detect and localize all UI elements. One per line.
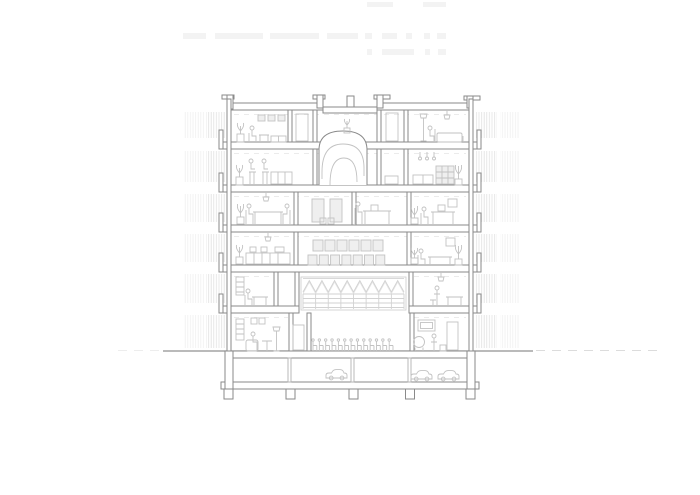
pendant-lamp-icon [420,152,434,157]
shelf-icon [236,319,244,340]
table-icon [262,341,272,351]
person-icon [421,207,428,224]
person-icon [249,126,256,142]
table-icon [253,212,283,224]
basement-floor-slab [221,382,479,389]
plant-icon [237,123,244,142]
floor-lamp-icon [273,327,280,351]
person-icon [251,332,257,351]
window-elevation [330,199,342,222]
picture-frame-icon [448,199,457,207]
person-icon [249,159,256,184]
picture-frame-icon [418,320,435,331]
car-icon [326,370,347,380]
floor-slab [227,185,473,192]
roof-slab-left [227,103,323,110]
person-icon [283,204,290,224]
person-icon [431,334,437,351]
floor-slab [227,265,473,272]
picture-frame-icon [446,238,455,246]
cabinet-icon [271,136,286,142]
kitchen-counter-icon [413,175,433,184]
rooftop-hatch-box [347,96,354,107]
table-icon [259,135,269,142]
auditorium-chairs [312,339,393,351]
person-icon [428,126,434,142]
shelf-icon [236,277,244,295]
shelf-icon [436,166,454,184]
car-icon [411,371,432,381]
person-icon [262,159,269,184]
car-icon [438,371,459,381]
basement-wall-right [467,351,475,389]
plant-icon [236,245,243,264]
cabinet-icon [385,176,398,184]
window-elevation [312,199,324,222]
outer-wall-right [469,99,473,351]
plant-icon [236,165,243,185]
door-icon [386,113,398,141]
spiral-stair [319,131,367,185]
plant-icon [455,165,462,185]
floor-slab [227,306,299,313]
outer-wall-left [227,99,231,351]
floor-slab [227,225,473,232]
basement-wall-left [225,351,233,389]
floor1-scene [236,318,458,351]
desk-icon [446,297,463,306]
door-icon [293,325,304,350]
person-icon [246,204,253,224]
faint-background-marks [183,2,446,55]
door-icon [447,322,458,350]
seat-rows-elevation [308,240,385,265]
plant-icon [440,345,446,351]
building-section-svg [0,0,700,495]
person-icon [434,286,440,306]
desk-icon [363,205,391,224]
basement-cars [326,370,459,381]
desk-icon [428,257,452,265]
armchair-icon [414,337,425,352]
desk-icon [431,205,455,224]
door-icon [296,114,308,141]
plant-icon [455,245,462,265]
plant-icon [411,248,418,264]
desk-icon [252,297,268,306]
stool-icon [430,300,436,306]
roof-slab-center [323,107,377,113]
floor-slab [409,306,473,313]
person-icon [245,289,252,306]
roof-slab-right [377,103,473,110]
ground-slab [225,351,475,358]
plant-icon [237,204,244,224]
hall-truss [301,277,406,310]
section-drawing-canvas [0,0,700,495]
kitchen-counter-icon [246,253,290,264]
plant-icon [411,206,418,224]
sofa-icon [435,129,463,142]
floor-lamp-icon [420,114,427,141]
basement-columns [288,358,411,382]
person-icon [418,249,425,265]
kitchen-counter-icon [271,172,292,184]
footings [224,389,475,399]
